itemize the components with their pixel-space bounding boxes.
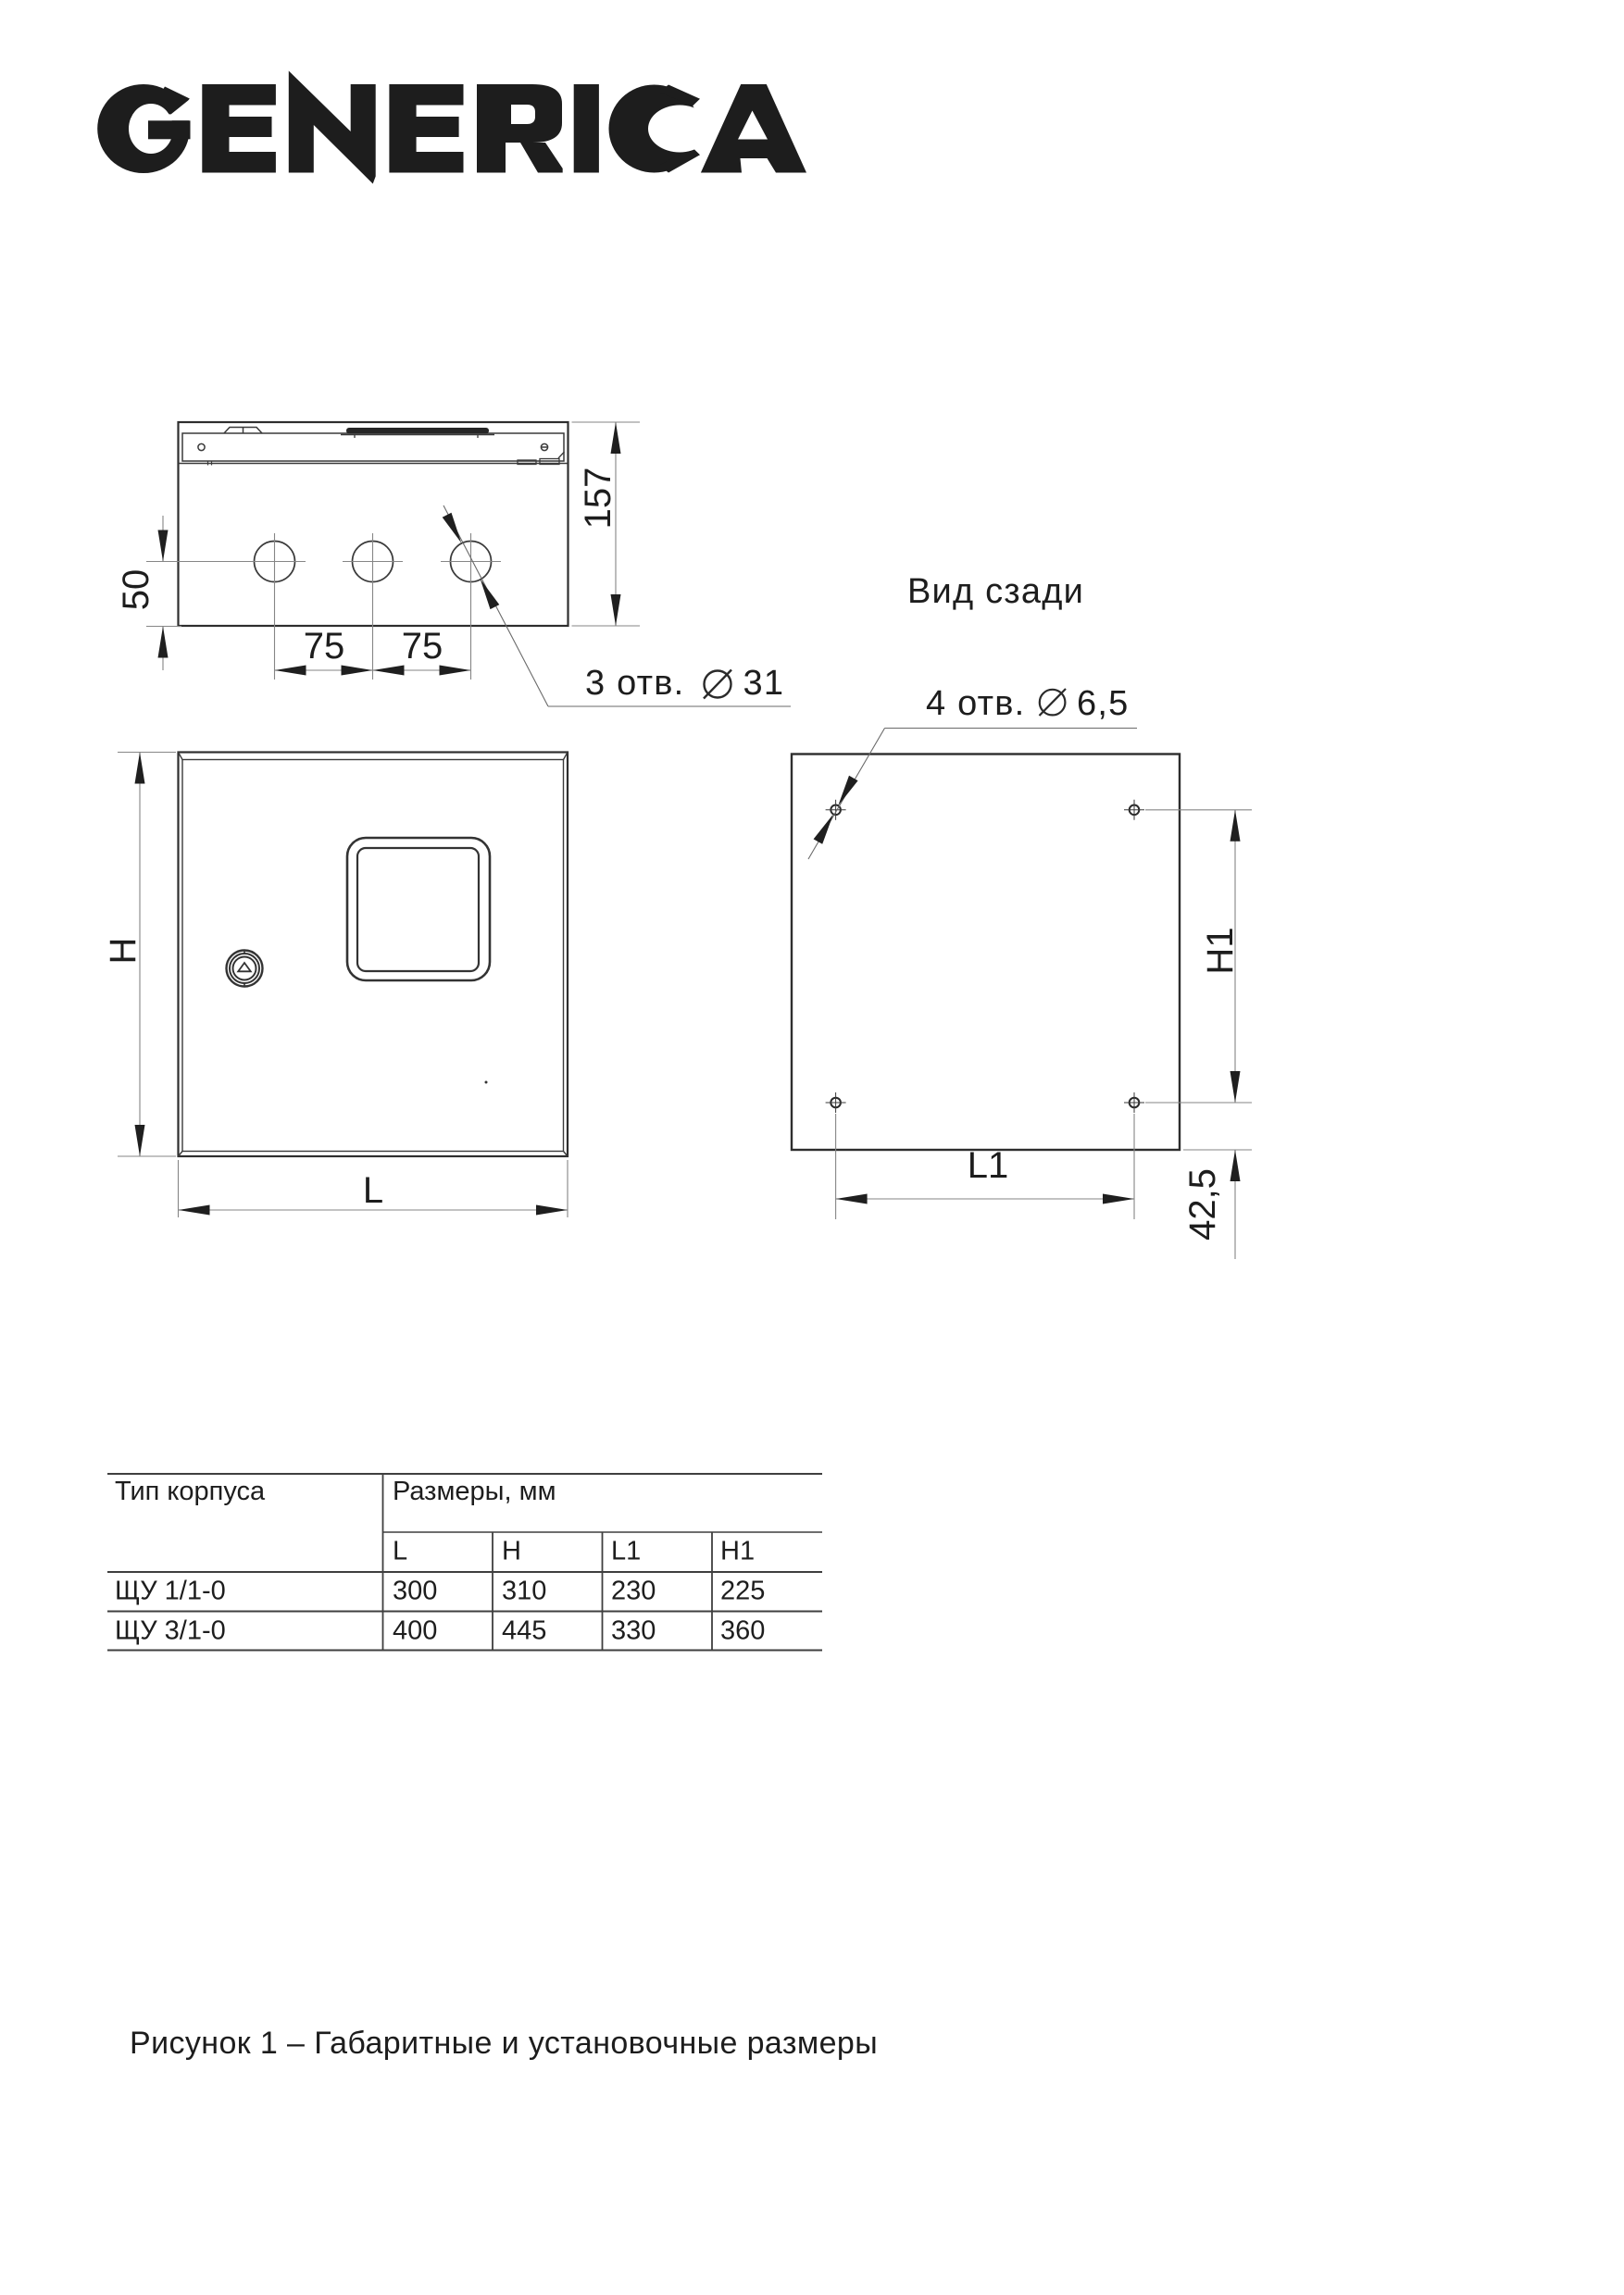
svg-text:230: 230: [611, 1577, 656, 1606]
svg-text:31: 31: [743, 664, 785, 703]
svg-text:H: H: [502, 1537, 521, 1566]
svg-text:ЩУ 1/1-0: ЩУ 1/1-0: [115, 1577, 226, 1606]
svg-text:H1: H1: [720, 1537, 755, 1566]
svg-text:300: 300: [393, 1577, 437, 1606]
svg-text:ЩУ 3/1-0: ЩУ 3/1-0: [115, 1616, 226, 1646]
svg-text:330: 330: [611, 1616, 656, 1646]
svg-text:42,5: 42,5: [1182, 1168, 1223, 1241]
svg-text:3 отв.: 3 отв.: [585, 664, 684, 703]
svg-text:445: 445: [502, 1616, 546, 1646]
svg-text:L: L: [393, 1537, 407, 1566]
svg-text:75: 75: [304, 626, 345, 667]
svg-text:157: 157: [578, 468, 618, 530]
svg-text:360: 360: [720, 1616, 765, 1646]
svg-text:6,5: 6,5: [1077, 684, 1129, 723]
svg-text:310: 310: [502, 1577, 546, 1606]
svg-text:Вид сзади: Вид сзади: [907, 572, 1084, 611]
svg-text:225: 225: [720, 1577, 765, 1606]
svg-text:L1: L1: [968, 1145, 1009, 1186]
svg-text:L: L: [363, 1170, 383, 1211]
svg-text:Рисунок 1 – Габаритные и устан: Рисунок 1 – Габаритные и установочные ра…: [130, 2026, 878, 2061]
svg-text:H: H: [103, 938, 144, 965]
svg-text:75: 75: [402, 626, 443, 667]
svg-text:4 отв.: 4 отв.: [926, 684, 1025, 723]
svg-text:50: 50: [116, 569, 156, 611]
svg-text:H1: H1: [1200, 927, 1241, 974]
svg-text:L1: L1: [611, 1537, 641, 1566]
svg-text:400: 400: [393, 1616, 437, 1646]
svg-text:Тип корпуса: Тип корпуса: [115, 1477, 266, 1506]
svg-text:Размеры, мм: Размеры, мм: [393, 1477, 556, 1506]
